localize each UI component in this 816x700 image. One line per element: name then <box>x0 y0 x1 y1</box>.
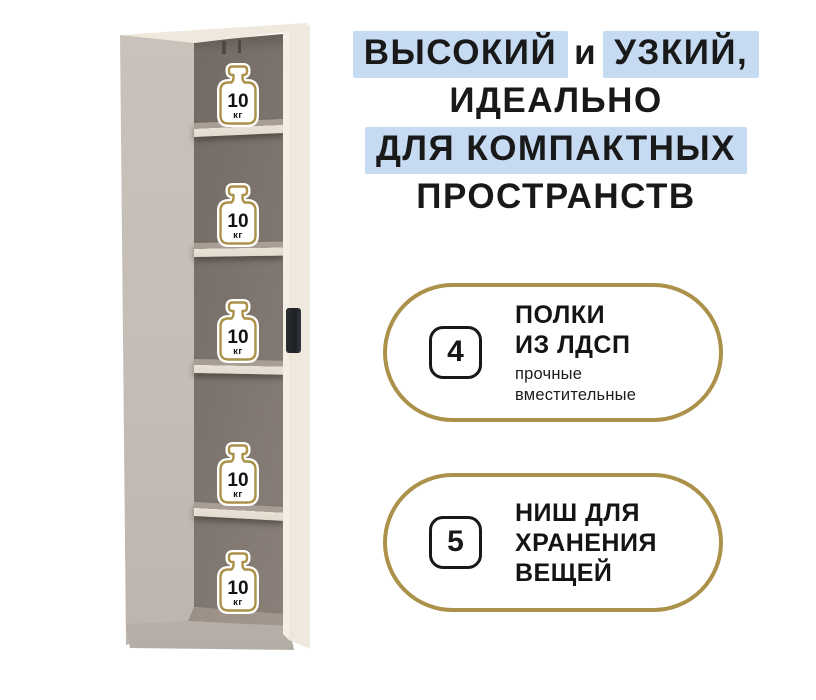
weight-value: 10 <box>227 578 248 599</box>
weight-value: 10 <box>227 327 248 348</box>
feature-count: 4 <box>447 335 464 369</box>
feature-title-line: ХРАНЕНИЯ <box>515 528 657 558</box>
weight-value: 10 <box>227 470 248 491</box>
hinge-mark <box>238 40 241 53</box>
weight-value: 10 <box>227 91 248 112</box>
headline-highlight: УЗКИЙ, <box>603 31 759 78</box>
headline-text: и <box>574 31 597 78</box>
headline-line-1: ВЫСОКИЙ и УЗКИЙ, <box>336 30 776 78</box>
feature-count-box: 5 <box>429 516 482 569</box>
feature-title-line: ВЕЩЕЙ <box>515 558 657 588</box>
weight-icon: 10 кг <box>218 551 258 613</box>
hinge-mark <box>222 41 226 54</box>
feature-subtitle: прочные вместительные <box>515 364 636 406</box>
feature-card-shelves: 4 ПОЛКИ ИЗ ЛДСП прочные вместительные <box>383 283 723 422</box>
headline-line-3: ДЛЯ КОМПАКТНЫХ <box>336 126 776 174</box>
weight-icon: 10 кг <box>218 64 258 126</box>
feature-card-niches: 5 НИШ ДЛЯ ХРАНЕНИЯ ВЕЩЕЙ <box>383 473 723 612</box>
weight-unit: кг <box>233 597 243 608</box>
feature-title: ПОЛКИ ИЗ ЛДСП <box>515 300 636 360</box>
cabinet-illustration: 10 кг 10 кг 10 кг 10 кг 10 кг <box>118 22 318 667</box>
weight-icon: 10 кг <box>218 184 258 246</box>
weight-unit: кг <box>233 230 243 241</box>
door-handle <box>286 308 301 353</box>
feature-text: ПОЛКИ ИЗ ЛДСП прочные вместительные <box>515 300 636 406</box>
feature-title: НИШ ДЛЯ ХРАНЕНИЯ ВЕЩЕЙ <box>515 498 657 588</box>
feature-subtitle-line: вместительные <box>515 385 636 406</box>
weight-icon: 10 кг <box>218 300 258 362</box>
headline-text: ИДЕАЛЬНО <box>449 79 662 126</box>
headline-highlight: ДЛЯ КОМПАКТНЫХ <box>365 127 747 174</box>
weight-unit: кг <box>233 110 243 121</box>
headline-text: ПРОСТРАНСТВ <box>416 175 695 222</box>
weight-icon: 10 кг <box>218 443 258 505</box>
feature-count: 5 <box>447 525 464 559</box>
feature-title-line: ПОЛКИ <box>515 300 636 330</box>
feature-count-box: 4 <box>429 326 482 379</box>
weight-value: 10 <box>227 211 248 232</box>
headline-highlight: ВЫСОКИЙ <box>353 31 568 78</box>
headline-line-2: ИДЕАЛЬНО <box>336 78 776 126</box>
product-infographic: 10 кг 10 кг 10 кг 10 кг 10 кг <box>0 0 816 700</box>
feature-title-line: ИЗ ЛДСП <box>515 330 636 360</box>
feature-title-line: НИШ ДЛЯ <box>515 498 657 528</box>
weight-unit: кг <box>233 489 243 500</box>
feature-text: НИШ ДЛЯ ХРАНЕНИЯ ВЕЩЕЙ <box>515 498 657 588</box>
headline-line-4: ПРОСТРАНСТВ <box>336 174 776 222</box>
weight-unit: кг <box>233 346 243 357</box>
headline: ВЫСОКИЙ и УЗКИЙ, ИДЕАЛЬНО ДЛЯ КОМПАКТНЫХ… <box>336 30 776 222</box>
feature-subtitle-line: прочные <box>515 364 636 385</box>
